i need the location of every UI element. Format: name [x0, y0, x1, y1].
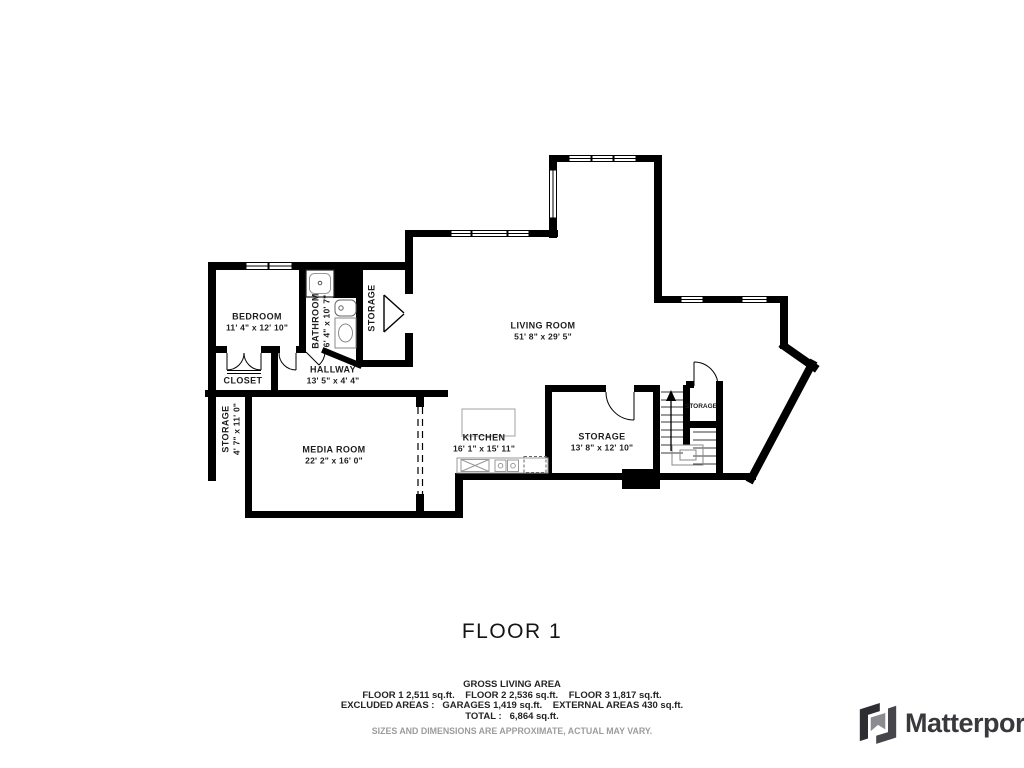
matterport-logo: Matterport	[858, 701, 1024, 745]
room-dims: 16' 1" x 15' 11"	[453, 443, 515, 453]
bifold-doors	[384, 295, 404, 332]
room-name: CLOSET	[224, 376, 263, 387]
room-dims: 13' 8" x 12' 10"	[571, 442, 634, 452]
room-dims: 4' 7" x 11' 0"	[231, 403, 241, 455]
room-label-storage-stair: STORAGE	[685, 403, 717, 411]
room-label-hallway: HALLWAY 13' 5" x 4' 4"	[307, 365, 360, 386]
room-name: HALLWAY	[307, 365, 360, 376]
floorplan-page: BEDROOM 11' 4" x 12' 10" BATHROOM 6' 4" …	[0, 0, 1024, 768]
room-label-kitchen: KITCHEN 16' 1" x 15' 11"	[453, 433, 515, 454]
floorplan-drawing	[0, 0, 1024, 768]
room-name: STORAGE	[367, 284, 378, 331]
room-dims: 11' 4" x 12' 10"	[226, 322, 288, 332]
room-name: BEDROOM	[226, 312, 288, 323]
dashed-opening	[418, 407, 423, 494]
room-dims: 22' 2" x 16' 0"	[302, 455, 365, 465]
room-label-bathroom: BATHROOM 6' 4" x 10' 7"	[311, 293, 332, 349]
kitchen-counter	[457, 457, 548, 474]
room-dims: 13' 5" x 4' 4"	[307, 375, 360, 385]
room-name: STORAGE	[571, 432, 634, 443]
room-label-bedroom: BEDROOM 11' 4" x 12' 10"	[226, 312, 288, 333]
matterport-logo-text: Matterport	[905, 708, 1024, 739]
room-name: BATHROOM	[311, 293, 322, 349]
floor-title: FLOOR 1	[0, 620, 1024, 644]
room-name: STORAGE	[685, 403, 717, 411]
room-dims: 51' 8" x 29' 5"	[511, 331, 576, 341]
room-label-media-room: MEDIA ROOM 22' 2" x 16' 0"	[302, 445, 365, 466]
room-name: MEDIA ROOM	[302, 445, 365, 456]
room-label-storage-left: STORAGE 4' 7" x 11' 0"	[221, 403, 242, 455]
room-label-living-room: LIVING ROOM 51' 8" x 29' 5"	[511, 321, 576, 342]
room-name: KITCHEN	[453, 433, 515, 444]
matterport-logo-icon	[858, 701, 898, 745]
room-name: LIVING ROOM	[511, 321, 576, 332]
room-name: STORAGE	[221, 403, 232, 455]
room-dims: 6' 4" x 10' 7"	[321, 293, 331, 349]
bathtub	[335, 300, 356, 316]
stair-direction-arrow	[666, 390, 676, 451]
room-label-storage-upper: STORAGE	[367, 284, 378, 331]
summary-gross-living-area: GROSS LIVING AREA	[0, 680, 1024, 691]
room-label-storage-main: STORAGE 13' 8" x 12' 10"	[571, 432, 634, 453]
vanity-sink	[335, 318, 356, 348]
room-label-closet: CLOSET	[224, 376, 263, 387]
